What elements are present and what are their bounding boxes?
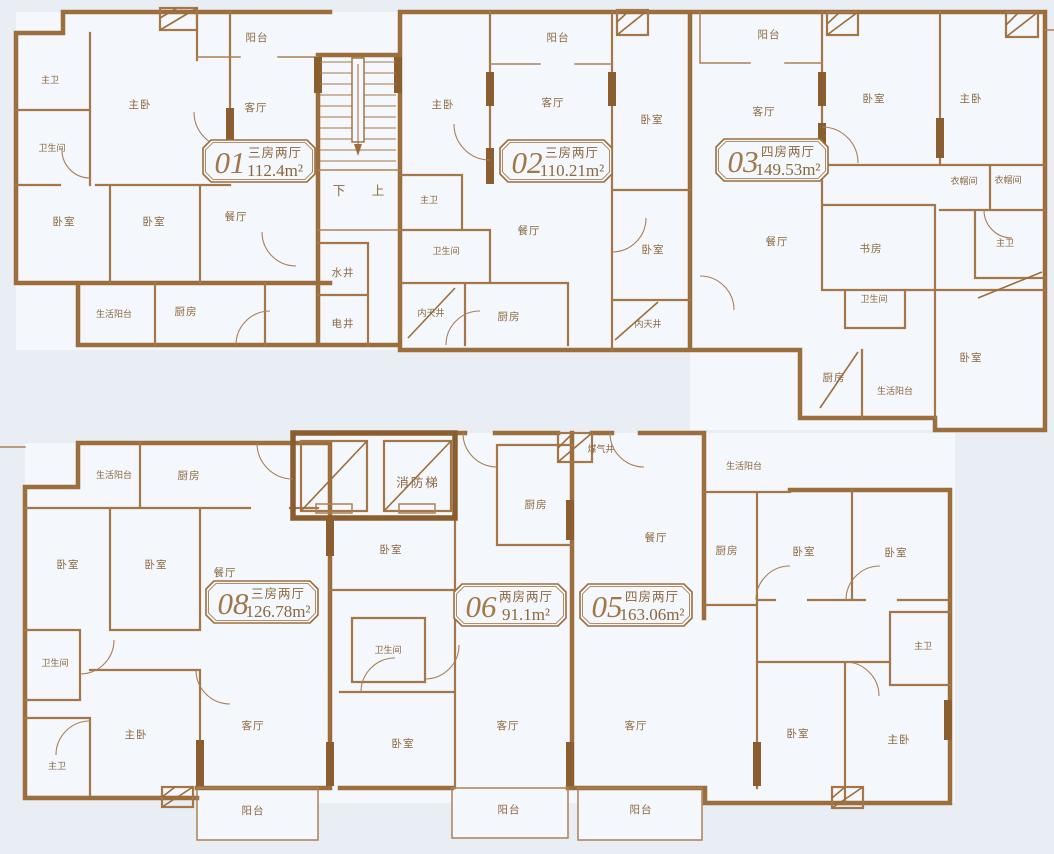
floor-plan-drawing: 下 上 水井 电井 消防梯 煤气井 <box>0 0 1054 854</box>
unit-area: 91.1m² <box>502 605 550 624</box>
water-shaft-label: 水井 <box>332 266 355 279</box>
unit-number: 02 <box>512 145 543 180</box>
cloakroom-label: 衣帽间 <box>950 175 977 186</box>
unit-area: 126.78m² <box>245 602 310 621</box>
dining-room-label: 餐厅 <box>645 531 668 544</box>
unit-number: 05 <box>592 589 623 624</box>
service-balcony-label: 生活阳台 <box>877 385 913 396</box>
unit-number: 01 <box>215 145 246 180</box>
balcony-label: 阳台 <box>242 804 265 817</box>
master-bedroom-label: 主卧 <box>888 733 911 746</box>
light-well-label: 内天井 <box>634 318 661 329</box>
living-room-label: 客厅 <box>245 101 268 114</box>
unit-number: 06 <box>466 589 498 624</box>
master-bedroom-label: 主卧 <box>125 728 148 741</box>
dining-room-label: 餐厅 <box>518 224 541 237</box>
master-bath-label: 主卫 <box>41 74 59 85</box>
bedroom-label: 卧室 <box>380 543 403 556</box>
light-well-label: 内天井 <box>417 307 444 318</box>
service-balcony-label: 生活阳台 <box>726 460 762 471</box>
unit-area: 163.06m² <box>619 605 684 624</box>
service-balcony-label: 生活阳台 <box>96 469 132 480</box>
unit-layout: 三房两厅 <box>251 586 305 601</box>
bathroom-label: 卫生间 <box>38 142 65 153</box>
dining-room-label: 餐厅 <box>766 235 789 248</box>
stairs-up-label: 上 <box>372 184 387 198</box>
floor-plan: 下 上 水井 电井 消防梯 煤气井 <box>0 0 1054 854</box>
bathroom-label: 卫生间 <box>432 245 459 256</box>
unit-layout: 四房两厅 <box>625 589 679 604</box>
unit-badge-05: 05 四房两厅 163.06m² <box>580 584 692 626</box>
kitchen-label: 厨房 <box>175 305 198 318</box>
bathroom-label: 卫生间 <box>860 293 887 304</box>
bedroom-label: 卧室 <box>885 546 908 559</box>
unit-layout: 三房两厅 <box>248 145 302 160</box>
bathroom-label: 卫生间 <box>374 644 401 655</box>
balcony-label: 阳台 <box>246 31 269 44</box>
service-balcony-label: 生活阳台 <box>96 308 132 319</box>
living-room-label: 客厅 <box>242 719 265 732</box>
bedroom-label: 卧室 <box>57 558 80 571</box>
master-bath-label: 主卫 <box>914 640 932 651</box>
unit-badge-02: 02 三房两厅 110.21m² <box>500 140 612 182</box>
living-room-label: 客厅 <box>625 719 648 732</box>
bedroom-label: 卧室 <box>787 727 810 740</box>
bathroom-label: 卫生间 <box>41 657 68 668</box>
living-room-label: 客厅 <box>542 96 565 109</box>
bedroom-label: 卧室 <box>960 351 983 364</box>
bedroom-label: 卧室 <box>392 737 415 750</box>
unit-badge-01: 01 三房两厅 112.4m² <box>203 140 315 182</box>
master-bath-label: 主卫 <box>996 237 1014 248</box>
dining-room-label: 餐厅 <box>214 566 237 579</box>
stairs-down-label: 下 <box>333 184 348 198</box>
bedroom-label: 卧室 <box>53 215 76 228</box>
fire-elevator-label: 消防梯 <box>396 475 440 490</box>
kitchen-label: 厨房 <box>716 544 739 557</box>
unit-layout: 三房两厅 <box>545 145 599 160</box>
unit-number: 08 <box>218 586 250 621</box>
unit-badge-03: 03 四房两厅 149.53m² <box>716 139 828 181</box>
unit-area: 110.21m² <box>540 161 604 180</box>
balcony-label: 阳台 <box>758 28 781 41</box>
cloakroom-label: 衣帽间 <box>994 174 1021 185</box>
living-room-label: 客厅 <box>753 105 776 118</box>
kitchen-label: 厨房 <box>823 371 846 384</box>
unit-layout: 四房两厅 <box>761 144 815 159</box>
gas-shaft-label: 煤气井 <box>587 443 614 454</box>
unit-number: 03 <box>728 144 759 179</box>
unit-badge-06: 06 两房两厅 91.1m² <box>454 584 566 626</box>
balcony-label: 阳台 <box>630 803 653 816</box>
unit-area: 149.53m² <box>755 160 820 179</box>
balcony-label: 阳台 <box>547 31 570 44</box>
master-bath-label: 主卫 <box>48 760 66 771</box>
master-bedroom-label: 主卧 <box>960 92 983 105</box>
unit-badge-08: 08 三房两厅 126.78m² <box>206 581 318 623</box>
master-bath-label: 主卫 <box>420 194 438 205</box>
room-fill-areas <box>16 12 1045 840</box>
electric-shaft-label: 电井 <box>332 317 355 330</box>
unit-area: 112.4m² <box>247 161 303 180</box>
dining-room-label: 餐厅 <box>225 210 248 223</box>
master-bedroom-label: 主卧 <box>129 98 152 111</box>
living-room-label: 客厅 <box>497 719 520 732</box>
bedroom-label: 卧室 <box>641 113 664 126</box>
kitchen-label: 厨房 <box>178 469 201 482</box>
balcony-label: 阳台 <box>498 803 521 816</box>
kitchen-label: 厨房 <box>498 310 521 323</box>
bedroom-label: 卧室 <box>145 558 168 571</box>
kitchen-label: 厨房 <box>525 498 548 511</box>
unit-layout: 两房两厅 <box>499 589 553 604</box>
bedroom-label: 卧室 <box>642 243 665 256</box>
bedroom-label: 卧室 <box>863 92 886 105</box>
bedroom-label: 卧室 <box>793 545 816 558</box>
bedroom-label: 卧室 <box>143 215 166 228</box>
master-bedroom-label: 主卧 <box>432 98 455 111</box>
study-label: 书房 <box>860 242 883 255</box>
